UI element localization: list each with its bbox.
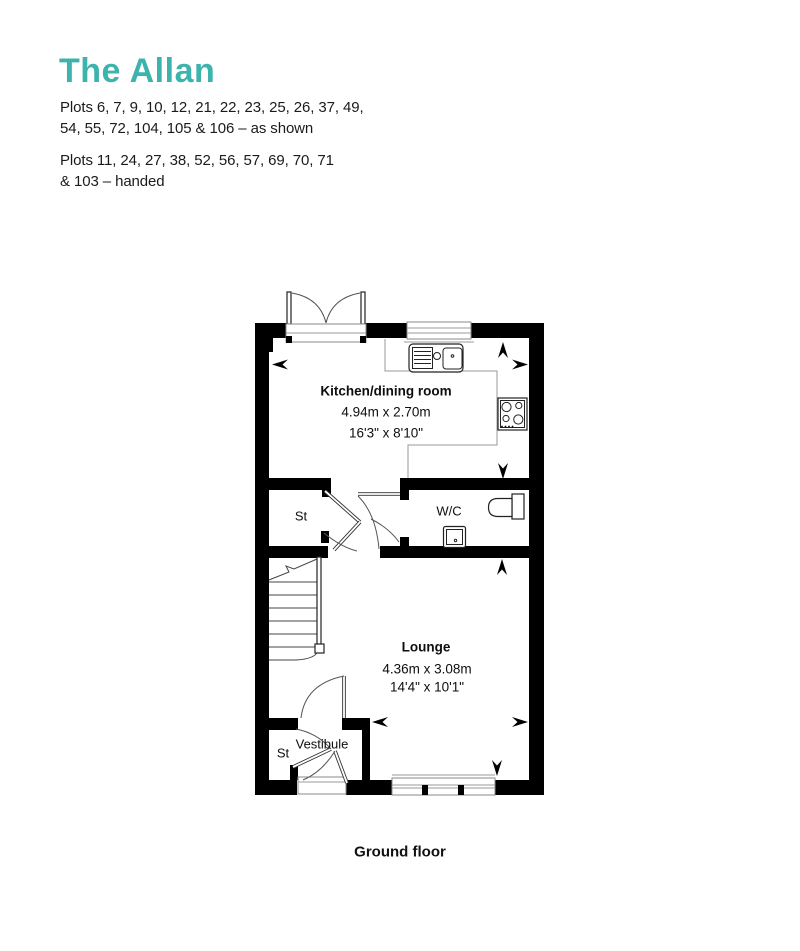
front-door — [298, 751, 347, 794]
kitchen-window — [404, 322, 474, 342]
kitchen-depth-arrow-down — [498, 463, 508, 479]
lounge-width-arrow-right — [512, 717, 528, 727]
wc-label: W/C — [436, 504, 461, 519]
hall-doors — [324, 491, 400, 551]
stairs — [269, 557, 324, 660]
hob — [498, 398, 527, 430]
basin — [444, 527, 466, 548]
lounge-door — [301, 676, 344, 718]
sink — [409, 344, 463, 372]
floor-caption: Ground floor — [354, 844, 446, 861]
kitchen-metric-dims: 4.94m x 2.70m — [341, 405, 430, 420]
lounge-metric-dims: 4.36m x 3.08m — [382, 662, 471, 677]
french-doors — [286, 292, 366, 343]
kitchen-imperial-dims: 16'3" x 8'10" — [349, 426, 423, 441]
store-vestibule-label: St — [277, 746, 289, 761]
toilet — [489, 494, 525, 519]
kitchen-width-arrow-right — [512, 360, 528, 370]
store-hall-label: St — [295, 509, 307, 524]
lounge-imperial-dims: 14'4" x 10'1" — [390, 680, 464, 695]
kitchen-label: Kitchen/dining room — [320, 384, 451, 399]
kitchen-width-arrow-left — [272, 360, 288, 370]
floor-plan-drawing — [0, 0, 800, 951]
lounge-label: Lounge — [402, 640, 451, 655]
kitchen-depth-arrow-up — [498, 342, 508, 358]
lounge-width-arrow-left — [372, 717, 388, 727]
floorplan-page: The Allan Plots 6, 7, 9, 10, 12, 21, 22,… — [0, 0, 800, 951]
lounge-depth-arrow-up — [497, 559, 507, 575]
vestibule-label: Vestibule — [296, 737, 349, 752]
lounge-window — [392, 775, 495, 795]
lounge-depth-arrow-down — [492, 760, 502, 776]
